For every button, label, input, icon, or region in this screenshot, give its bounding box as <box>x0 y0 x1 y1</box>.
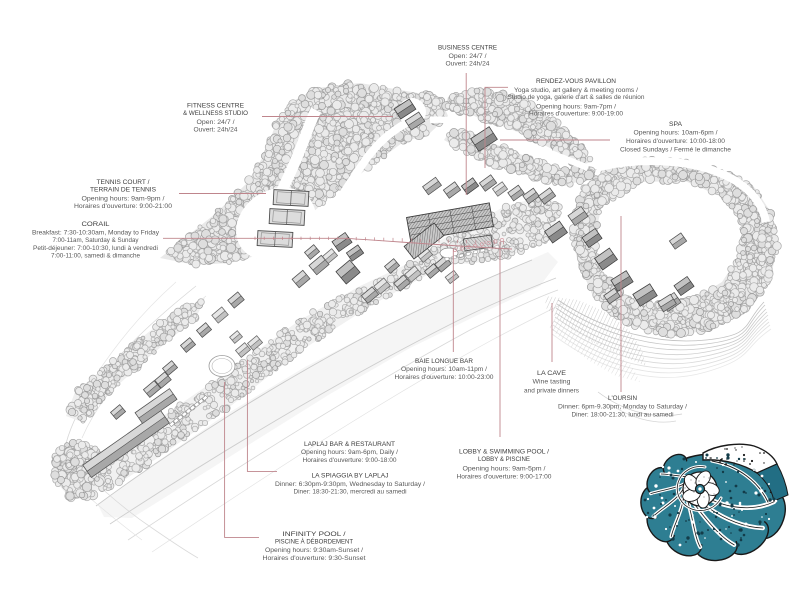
svg-text:Open: 24/7 /: Open: 24/7 / <box>449 53 487 60</box>
svg-text:Diner: 18:00-21:30, lundi au s: Diner: 18:00-21:30, lundi au samedi <box>572 412 675 419</box>
svg-text:Opening hours: 9am-6pm, Daily: Opening hours: 9am-6pm, Daily / <box>301 449 398 456</box>
svg-text:Horaires d'ouverture: 9:30-Sun: Horaires d'ouverture: 9:30-Sunset <box>263 555 366 562</box>
svg-text:L'OURSIN: L'OURSIN <box>608 395 637 402</box>
svg-text:Breakfast: 7:30-10:30am, Monda: Breakfast: 7:30-10:30am, Monday to Frida… <box>32 230 160 237</box>
svg-text:LOBBY & PISCINE: LOBBY & PISCINE <box>478 456 531 463</box>
svg-text:Ouvert: 24h/24: Ouvert: 24h/24 <box>446 61 490 68</box>
svg-text:Petit-déjeuner: 7:00-10:30, lu: Petit-déjeuner: 7:00-10:30, lundi à vend… <box>33 245 159 252</box>
svg-text:Horaires d'ouverture: 10:00-18: Horaires d'ouverture: 10:00-18:00 <box>626 138 725 145</box>
svg-text:LA SPIAGGIA BY LAPLAJ: LA SPIAGGIA BY LAPLAJ <box>312 473 389 480</box>
svg-text:& WELLNESS STUDIO: & WELLNESS STUDIO <box>183 110 248 117</box>
svg-text:Horaires d'ouverture: 9:00-21:: Horaires d'ouverture: 9:00-21:00 <box>74 203 172 210</box>
svg-text:Yoga studio, art gallery & mee: Yoga studio, art gallery & meeting rooms… <box>514 87 638 94</box>
svg-text:TENNIS COURT /: TENNIS COURT / <box>97 179 150 186</box>
svg-text:Diner: 18:30-21:30, mercredi a: Diner: 18:30-21:30, mercredi au samedi <box>294 489 408 496</box>
svg-text:RENDEZ-VOUS PAVILLON: RENDEZ-VOUS PAVILLON <box>536 78 616 85</box>
svg-text:Horaires d'ouverture: 9:00-17:: Horaires d'ouverture: 9:00-17:00 <box>457 474 552 481</box>
svg-text:Horaires d'ouverture: 9:00-18:: Horaires d'ouverture: 9:00-18:00 <box>303 457 397 464</box>
svg-text:Open: 24/7 /: Open: 24/7 / <box>197 119 235 126</box>
svg-text:Wine tasting: Wine tasting <box>533 379 571 386</box>
svg-text:LOBBY & SWIMMING POOL /: LOBBY & SWIMMING POOL / <box>459 449 549 456</box>
svg-text:Horaires d'ouverture: 10:00-23: Horaires d'ouverture: 10:00-23:00 <box>395 374 494 381</box>
svg-text:BAIE LONGUE BAR: BAIE LONGUE BAR <box>415 358 473 365</box>
svg-text:7:00-11:00, samedi & dimanche: 7:00-11:00, samedi & dimanche <box>51 253 140 260</box>
svg-text:CORAIL: CORAIL <box>82 221 110 228</box>
svg-text:7:00-11am, Saturday & Sunday: 7:00-11am, Saturday & Sunday <box>53 237 140 244</box>
svg-text:Closed Sundays / Fermé le dima: Closed Sundays / Fermé le dimanche <box>620 147 731 154</box>
svg-text:INFINITY POOL /: INFINITY POOL / <box>283 531 346 538</box>
svg-text:LAPLAJ BAR & RESTAURANT: LAPLAJ BAR & RESTAURANT <box>304 441 395 448</box>
svg-text:FITNESS CENTRE: FITNESS CENTRE <box>187 103 245 110</box>
svg-text:LA CAVE: LA CAVE <box>537 370 567 377</box>
svg-text:Opening hours: 9am-5pm /: Opening hours: 9am-5pm / <box>463 466 546 473</box>
svg-text:Opening hours: 10am-11pm /: Opening hours: 10am-11pm / <box>401 366 487 373</box>
svg-text:PISCINE À DÉBORDEMENT: PISCINE À DÉBORDEMENT <box>275 537 353 546</box>
svg-text:SPA: SPA <box>669 121 683 128</box>
svg-text:Ouvert: 24h/24: Ouvert: 24h/24 <box>194 127 238 134</box>
svg-text:Dinner: 6pm-9.30pm, Monday to: Dinner: 6pm-9.30pm, Monday to Saturday / <box>558 404 687 411</box>
svg-text:TERRAIN DE TENNIS: TERRAIN DE TENNIS <box>90 187 157 194</box>
svg-text:Dinner: 6:30pm-9:30pm, Wednesd: Dinner: 6:30pm-9:30pm, Wednesday to Satu… <box>275 481 425 488</box>
svg-text:and private dinners: and private dinners <box>524 387 580 394</box>
svg-text:Studio de yoga, galerie d'art: Studio de yoga, galerie d'art & salles d… <box>508 94 645 101</box>
svg-text:Horaires d'ouverture: 9:00-19:: Horaires d'ouverture: 9:00-19:00 <box>529 111 623 118</box>
svg-text:Opening hours: 10am-6pm /: Opening hours: 10am-6pm / <box>634 130 718 137</box>
svg-text:BUSINESS CENTRE: BUSINESS CENTRE <box>438 44 498 51</box>
svg-text:Opening hours: 9am-9pm /: Opening hours: 9am-9pm / <box>82 196 165 203</box>
svg-text:Opening hours: 9:30am-Sunset /: Opening hours: 9:30am-Sunset / <box>265 547 363 554</box>
